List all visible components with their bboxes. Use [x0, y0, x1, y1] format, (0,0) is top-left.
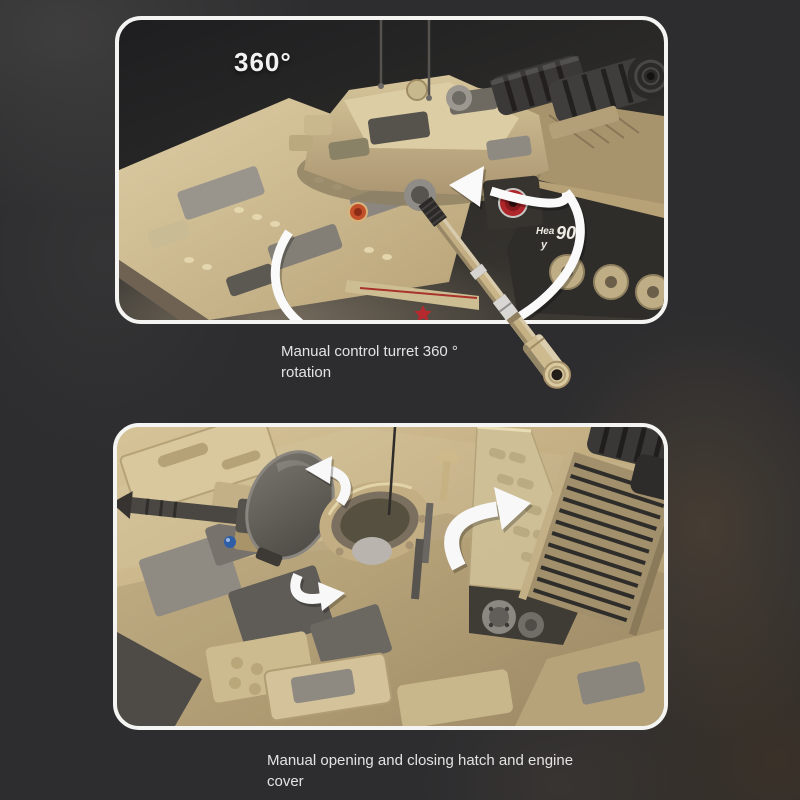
- caption-hatch-engine: Manual opening and closing hatch and eng…: [267, 750, 573, 792]
- hull-marking-suffix: y: [540, 239, 548, 251]
- turret-box-left2: [289, 135, 313, 151]
- panel-turret-rotation: Hea 90 y: [115, 16, 668, 324]
- muzzle-cylinder: [521, 333, 567, 383]
- panel-hatch-engine: [113, 423, 668, 730]
- loader-hatch-ring: [407, 80, 427, 100]
- cupola-hatch: [452, 91, 466, 105]
- tank-model: Hea 90 y: [119, 29, 664, 320]
- gray-disc: [352, 537, 392, 565]
- caption-line: cover: [267, 771, 573, 792]
- caption-line: Manual opening and closing hatch and eng…: [267, 750, 573, 771]
- periscope-rod-1: [425, 503, 430, 563]
- blue-lens: [224, 536, 236, 548]
- caption-line: rotation: [281, 362, 458, 383]
- turret-box-left: [304, 115, 332, 135]
- muzzle-bore: [549, 367, 564, 382]
- rotation-badge-label: 360°: [234, 47, 292, 78]
- muzzle-face: [539, 357, 575, 393]
- caption-turret-rotation: Manual control turret 360 ° rotation: [281, 341, 458, 383]
- hull-marking-number: 90: [556, 223, 576, 243]
- caption-line: Manual control turret 360 °: [281, 341, 458, 362]
- left-red-lens: [348, 202, 368, 222]
- tank-photo-illustration-bottom: [117, 427, 664, 726]
- tank-photo-illustration-top: Hea 90 y: [119, 20, 664, 320]
- periscope-rod-2: [415, 539, 420, 599]
- hull-marking-prefix: Hea: [536, 226, 555, 237]
